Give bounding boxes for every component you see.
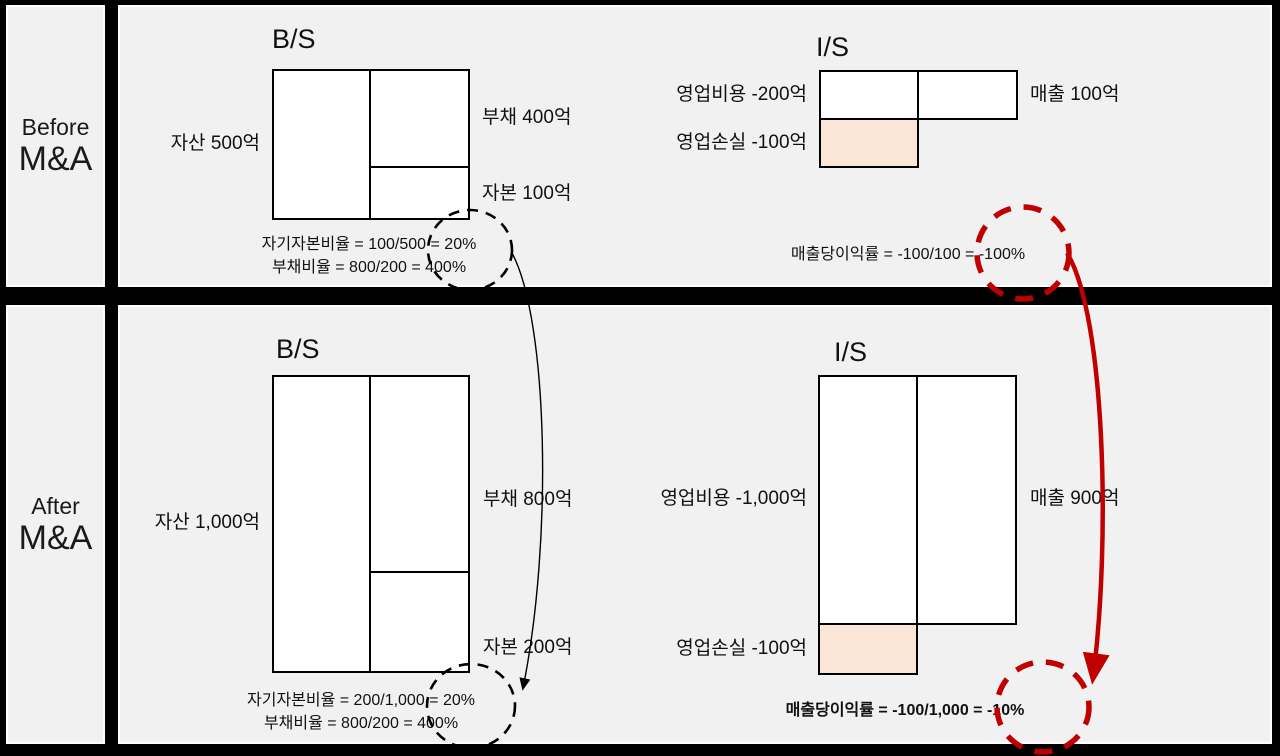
after-ma-label: M&A xyxy=(19,519,93,557)
before-debt-label: 부채 400억 xyxy=(482,107,571,129)
after-bs-horizontal-divider xyxy=(371,571,470,573)
after-bs-title: B/S xyxy=(276,334,320,365)
before-asset-label: 자산 500억 xyxy=(140,133,260,155)
after-label: After xyxy=(31,493,80,519)
after-asset-label: 자산 1,000억 xyxy=(125,512,260,534)
after-is-loss-box xyxy=(818,623,918,675)
before-bs-title: B/S xyxy=(272,24,316,55)
before-bs-vertical-divider xyxy=(369,69,371,220)
after-label-cell: After M&A xyxy=(6,305,105,744)
before-revenue-label: 매출 100억 xyxy=(1030,84,1119,106)
slide-frame: Before M&A After M&A B/S 자산 500억 부채 400억… xyxy=(0,0,1280,756)
after-loss-label: 영업손실 -100억 xyxy=(630,638,807,660)
after-equity-ratio-formula: 자기자본비율 = 200/1,000 = 20% xyxy=(221,689,501,712)
after-is-expense-box xyxy=(818,375,918,625)
before-bs-horizontal-divider xyxy=(371,166,470,168)
before-label: Before xyxy=(22,114,90,140)
before-equity-label: 자본 100억 xyxy=(482,183,571,205)
before-bs-box xyxy=(272,69,470,220)
after-debt-label: 부채 800억 xyxy=(483,489,572,511)
before-ma-label: M&A xyxy=(19,140,93,178)
before-expense-label: 영업비용 -200억 xyxy=(655,84,807,106)
after-margin-formula: 매출당이익률 = -100/1,000 = -10% xyxy=(745,699,1065,722)
after-expense-label: 영업비용 -1,000억 xyxy=(630,488,807,510)
before-margin-formula: 매출당이익률 = -100/100 = -100% xyxy=(758,243,1058,266)
after-bs-vertical-divider xyxy=(369,375,371,673)
before-is-revenue-box xyxy=(917,70,1018,120)
before-label-cell: Before M&A xyxy=(6,5,105,287)
before-loss-label: 영업손실 -100억 xyxy=(655,132,807,154)
before-debt-ratio-formula: 부채비율 = 800/200 = 400% xyxy=(229,256,509,279)
after-is-revenue-box xyxy=(916,375,1017,625)
after-equity-label: 자본 200억 xyxy=(483,637,572,659)
before-equity-ratio-formula: 자기자본비율 = 100/500 = 20% xyxy=(229,233,509,256)
before-is-loss-box xyxy=(819,118,919,168)
after-bs-box xyxy=(272,375,470,673)
after-debt-ratio-formula: 부채비율 = 800/200 = 400% xyxy=(221,712,501,735)
after-revenue-label: 매출 900억 xyxy=(1030,488,1119,510)
before-is-expense-box xyxy=(819,70,919,120)
after-is-title: I/S xyxy=(834,337,867,368)
before-is-title: I/S xyxy=(816,32,849,63)
